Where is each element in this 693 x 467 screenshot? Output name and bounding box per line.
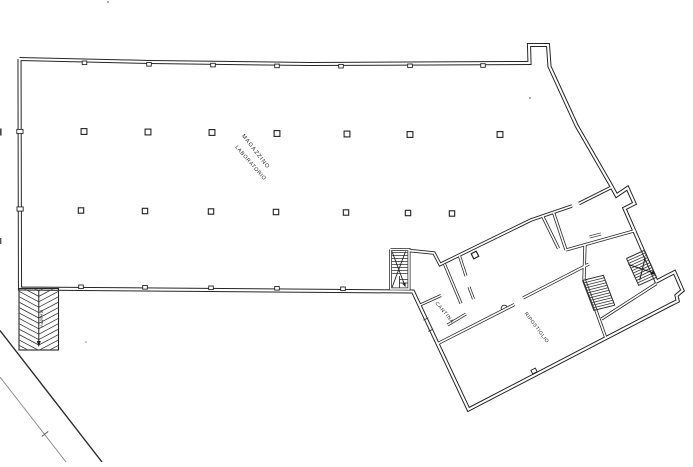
svg-text:RAMPA: RAMPA [39, 310, 44, 329]
